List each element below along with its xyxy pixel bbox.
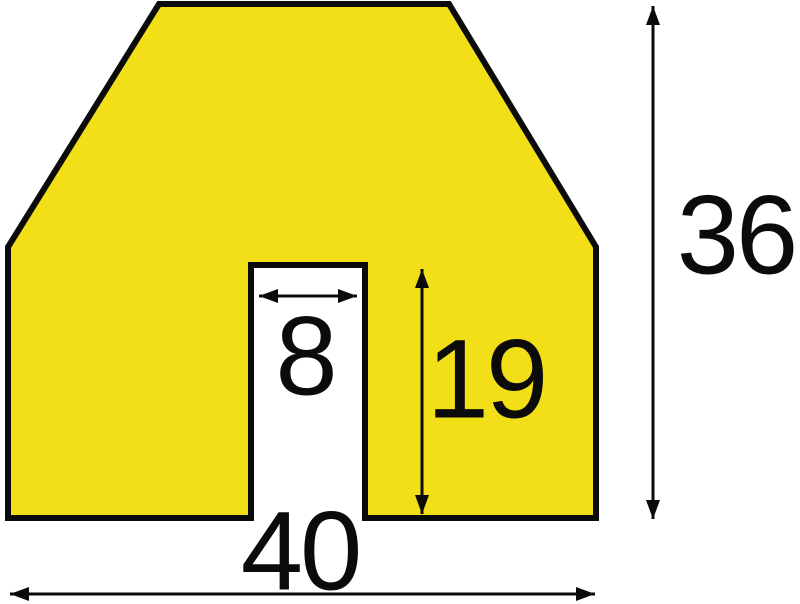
dimension-label-notch-width: 8 [275, 300, 334, 412]
diagram-canvas [0, 0, 800, 604]
dimension-label-notch-depth: 19 [427, 323, 546, 435]
dimension-label-overall-height: 36 [677, 179, 796, 291]
diagram-stage: 8 19 40 36 [0, 0, 800, 604]
dimension-label-overall-width: 40 [241, 495, 360, 604]
